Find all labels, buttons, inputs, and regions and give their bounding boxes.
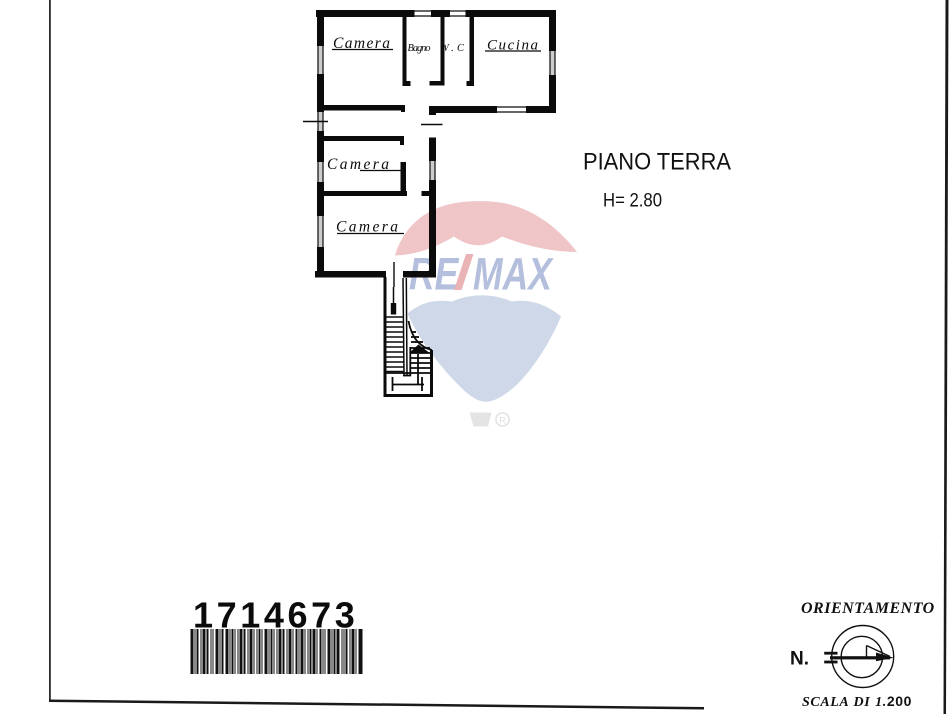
svg-text:PIANO TERRA: PIANO TERRA: [583, 149, 731, 176]
svg-text:H= 2.80: H= 2.80: [603, 190, 662, 212]
svg-text:MAX: MAX: [473, 248, 555, 299]
svg-text:Bagno: Bagno: [408, 43, 431, 54]
svg-text:ORIENTAMENTO: ORIENTAMENTO: [801, 600, 935, 617]
svg-text:W.C: W.C: [440, 43, 465, 54]
svg-text:N.: N.: [790, 649, 809, 670]
svg-text:SCALA DI 1.200: SCALA DI 1.200: [802, 693, 912, 710]
svg-text:R: R: [499, 416, 506, 427]
